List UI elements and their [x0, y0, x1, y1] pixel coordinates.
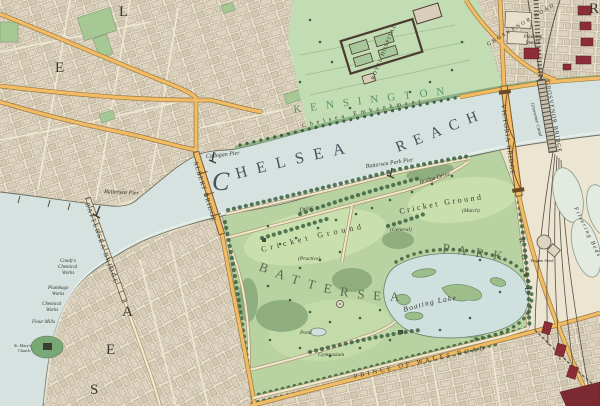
district-letter-l: L	[119, 4, 128, 20]
label-chemical-2: Works	[46, 308, 58, 313]
label-plumbago-2: Works	[52, 292, 64, 297]
label-match: (Match)	[462, 207, 480, 214]
label-engine-shed: Engine Shed	[531, 258, 555, 263]
label-chemical-1: Chemical	[42, 302, 62, 307]
label-gymnasium: Gymnasium	[318, 352, 344, 358]
district-letter-e: E	[55, 60, 64, 76]
label-stmarys-2: Church	[18, 348, 31, 353]
label-general: (General)	[390, 226, 412, 233]
map-canvas: C HELSEA REACH Chelsea Embankment KENSIN…	[0, 0, 600, 406]
label-condys-2: Chemical	[58, 265, 78, 270]
district-letter-e2: E	[106, 342, 115, 358]
label-plumbago-1: Plumbago	[47, 286, 69, 291]
district-letter-s: S	[90, 382, 98, 398]
label-pumping-2: Station	[526, 41, 541, 46]
label-practice: (Practice)	[298, 255, 320, 262]
st-marys-churchyard	[31, 336, 63, 358]
label-flour-mills: Flour Mills	[31, 320, 55, 325]
label-chelsea-initial: C	[212, 167, 230, 196]
label-pond: Pond	[299, 330, 312, 336]
label-pumping-1: Pumping	[524, 35, 543, 40]
label-condys-1: Condy's	[60, 259, 76, 264]
church-symbol	[43, 343, 52, 350]
district-letter-a: A	[122, 304, 133, 320]
pumping-station-building	[524, 48, 539, 59]
label-condys-3: Works	[62, 271, 74, 276]
pond	[310, 328, 326, 336]
vintage-map-svg: C HELSEA REACH Chelsea Embankment KENSIN…	[0, 0, 600, 406]
district-letter-r: R	[589, 1, 599, 17]
